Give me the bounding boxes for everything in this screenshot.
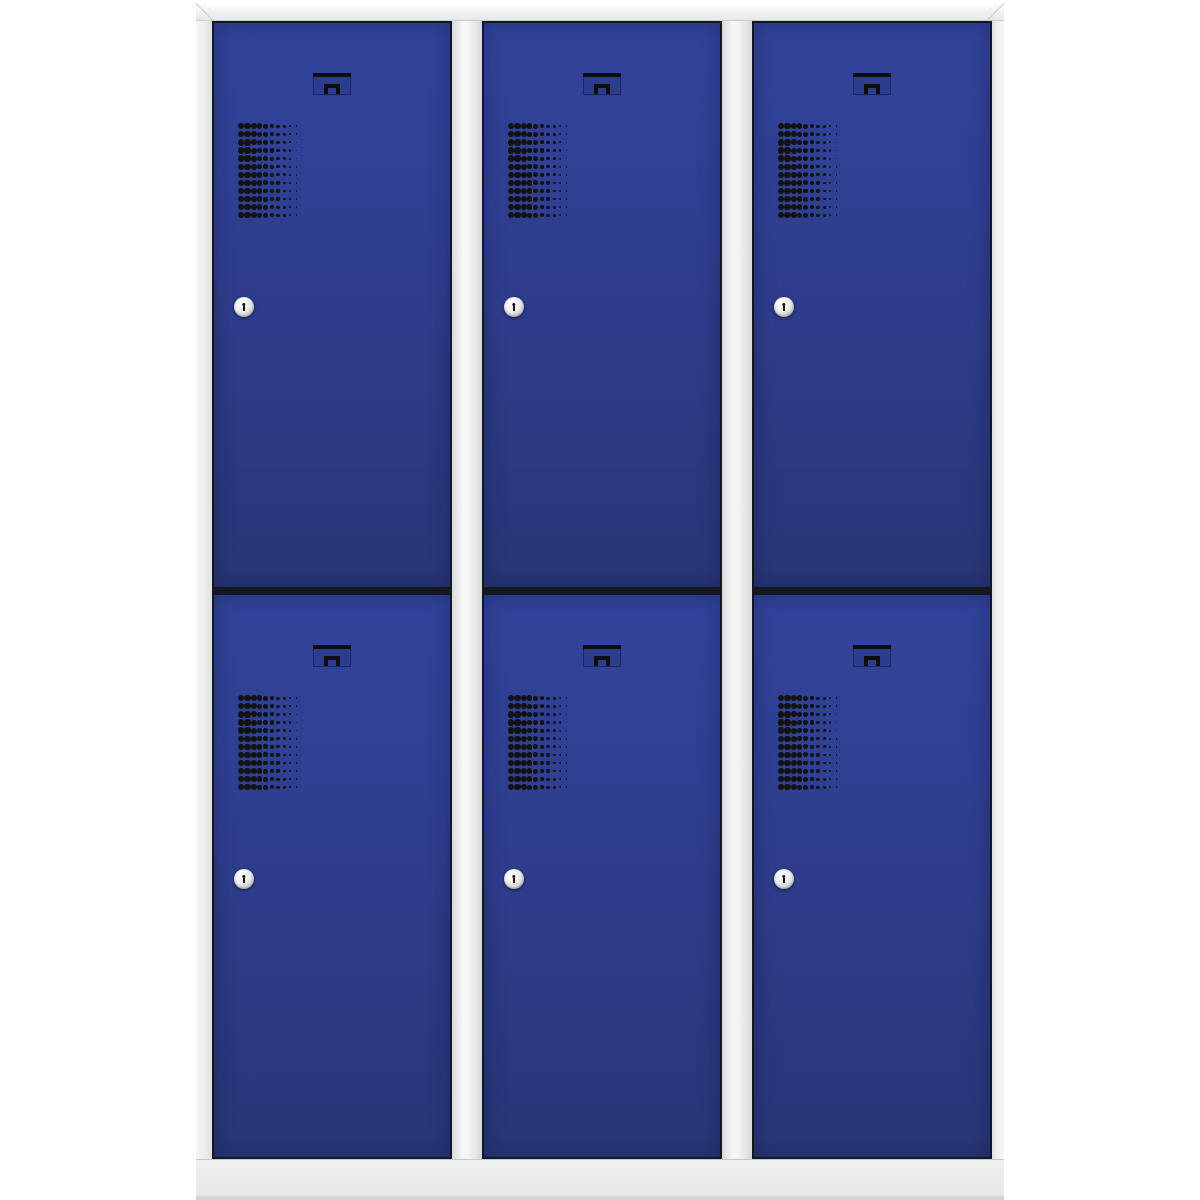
vent-dot — [521, 172, 527, 178]
vent-dot — [283, 149, 286, 152]
vent-dot — [553, 778, 556, 781]
vent-dot — [521, 139, 527, 145]
vent-dot — [784, 727, 790, 733]
vent-dot — [270, 189, 274, 193]
vent-dot — [263, 712, 268, 717]
vent-dot — [566, 150, 568, 152]
vent-dot — [559, 190, 561, 192]
vent-dot — [810, 753, 814, 757]
vent-dot — [566, 214, 568, 216]
vent-dot — [270, 745, 274, 749]
vent-dot — [829, 214, 831, 216]
vent-dot — [263, 189, 268, 194]
vent-dot — [823, 729, 826, 732]
vent-dot — [283, 713, 286, 716]
vent-dot — [514, 784, 520, 790]
vent-dot — [829, 190, 831, 192]
vent-dot — [251, 776, 257, 782]
vent-dot — [546, 197, 549, 200]
vent-dot — [283, 729, 286, 732]
vent-dot — [527, 156, 533, 162]
vent-dot — [797, 156, 803, 162]
vent-dot — [823, 754, 826, 757]
vent-dot — [553, 165, 556, 168]
vent-dot — [270, 205, 274, 209]
vent-dot — [566, 166, 568, 168]
vent-dot — [514, 164, 520, 170]
vent-dot — [829, 778, 831, 780]
vent-dot — [521, 720, 527, 726]
vent-dot — [784, 776, 790, 782]
vent-dot — [296, 150, 298, 152]
locker-column-2 — [482, 21, 722, 1159]
vent-dot — [527, 752, 533, 758]
door-latch-handle — [583, 73, 621, 95]
vent-dot — [810, 712, 814, 716]
vent-dot — [514, 196, 520, 202]
column-divider — [452, 21, 482, 1159]
vent-dot — [566, 697, 568, 699]
vent-dot — [784, 155, 790, 161]
vent-dot — [836, 738, 838, 740]
vent-dot — [816, 214, 819, 217]
vent-dot — [803, 156, 808, 161]
vent-dot — [521, 164, 527, 170]
vent-dot — [257, 720, 263, 726]
vent-dot — [533, 777, 538, 782]
vent-dot — [289, 133, 291, 135]
vent-dot — [276, 713, 279, 716]
vent-dot — [283, 206, 286, 209]
vent-dot — [540, 729, 544, 733]
vent-dot — [816, 721, 819, 724]
vent-dot — [251, 736, 257, 742]
vent-dot — [810, 745, 814, 749]
vent-dot — [791, 156, 797, 162]
vent-dot — [803, 744, 808, 749]
door-latch-handle — [853, 73, 891, 95]
vent-dot — [533, 164, 538, 169]
vent-dot — [527, 196, 533, 202]
vent-dot — [527, 123, 533, 129]
vent-dot — [296, 786, 298, 788]
vent-dot — [791, 703, 797, 709]
vent-dot — [296, 705, 298, 707]
vent-dot — [527, 736, 533, 742]
vent-dot — [784, 744, 790, 750]
vent-dot — [784, 180, 790, 186]
vent-dot — [566, 762, 568, 764]
vent-dot — [257, 744, 263, 750]
vent-dot — [836, 697, 838, 699]
vent-dot — [257, 204, 263, 210]
vent-dot — [289, 721, 291, 723]
latch-bracket — [864, 656, 880, 666]
vent-dot — [791, 744, 797, 750]
vent-dot — [244, 123, 250, 129]
vent-dot — [514, 736, 520, 742]
vent-dot — [514, 139, 520, 145]
vent-dot — [521, 760, 527, 766]
latch-recess — [583, 77, 621, 95]
vent-dot — [289, 705, 291, 707]
vent-dot — [566, 125, 568, 127]
vent-dot — [791, 123, 797, 129]
vent-dot — [797, 172, 803, 178]
ventilation-grille — [238, 123, 302, 221]
vent-dot — [540, 753, 544, 757]
vent-dot — [263, 785, 268, 790]
vent-dot — [521, 148, 527, 154]
vent-dot — [276, 133, 279, 136]
vent-dot — [836, 746, 838, 748]
vent-dot — [244, 760, 250, 766]
vent-dot — [270, 181, 274, 185]
vent-dot — [566, 778, 568, 780]
vent-dot — [797, 196, 803, 202]
vent-dot — [251, 148, 257, 154]
vent-dot — [803, 761, 808, 766]
vent-dot — [276, 214, 279, 217]
vent-dot — [283, 214, 286, 217]
vent-dot — [263, 197, 268, 202]
vent-dot — [296, 762, 298, 764]
vent-dot — [296, 214, 298, 216]
vent-dot — [276, 737, 279, 740]
vent-dot — [836, 125, 838, 127]
latch-recess — [583, 649, 621, 667]
vent-dot — [836, 770, 838, 772]
vent-dot — [559, 214, 561, 216]
vent-dot — [257, 188, 263, 194]
vent-dot — [803, 752, 808, 757]
vent-dot — [521, 204, 527, 210]
vent-dot — [559, 754, 561, 756]
vent-dot — [244, 736, 250, 742]
vent-dot — [276, 165, 279, 168]
vent-dot — [559, 174, 561, 176]
vent-dot — [244, 172, 250, 178]
locker-column-3 — [752, 21, 992, 1159]
vent-dot — [829, 738, 831, 740]
ventilation-grille — [508, 123, 572, 221]
vent-dot — [527, 188, 533, 194]
keyhole-slit — [243, 306, 245, 311]
vent-dot — [270, 124, 274, 128]
vent-dot — [797, 213, 803, 219]
vent-dot — [244, 188, 250, 194]
vent-dot — [559, 705, 561, 707]
vent-dot — [784, 703, 790, 709]
vent-dot — [546, 181, 549, 184]
vent-dot — [251, 728, 257, 734]
vent-dot — [244, 776, 250, 782]
vent-dot — [289, 786, 291, 788]
vent-dot — [257, 695, 263, 701]
vent-dot — [784, 123, 790, 129]
vent-dot — [296, 198, 298, 200]
vent-dot — [521, 156, 527, 162]
vent-dot — [559, 182, 561, 184]
vent-dot — [251, 123, 257, 129]
vent-dot — [829, 770, 831, 772]
vent-dot — [296, 158, 298, 160]
cylinder-lock — [234, 297, 254, 317]
vent-dot — [270, 213, 274, 217]
vent-dot — [836, 714, 838, 716]
vent-dot — [810, 148, 814, 152]
vent-dot — [791, 172, 797, 178]
vent-dot — [527, 760, 533, 766]
vent-dot — [251, 703, 257, 709]
vent-dot — [289, 730, 291, 732]
vent-dot — [296, 754, 298, 756]
vent-dot — [546, 778, 549, 781]
vent-dot — [276, 149, 279, 152]
latch-recess — [313, 649, 351, 667]
vent-dot — [566, 722, 568, 724]
vent-dot — [810, 132, 814, 136]
vent-dot — [836, 190, 838, 192]
vent-dot — [263, 213, 268, 218]
vent-dot — [257, 140, 263, 146]
vent-dot — [533, 769, 538, 774]
vent-dot — [244, 196, 250, 202]
vent-dot — [797, 188, 803, 194]
vent-dot — [289, 190, 291, 192]
vent-dot — [836, 133, 838, 135]
vent-dot — [270, 785, 274, 789]
vent-dot — [540, 140, 544, 144]
vent-dot — [791, 131, 797, 137]
vent-dot — [283, 173, 286, 176]
vent-dot — [829, 182, 831, 184]
vent-dot — [829, 746, 831, 748]
vent-dot — [276, 173, 279, 176]
vent-dot — [829, 721, 831, 723]
vent-dot — [296, 166, 298, 168]
vent-dot — [244, 711, 250, 717]
vent-dot — [566, 190, 568, 192]
vent-dot — [257, 728, 263, 734]
vent-dot — [553, 705, 556, 708]
vent-dot — [283, 165, 286, 168]
vent-dot — [251, 784, 257, 790]
vent-dot — [276, 769, 279, 772]
miter-seam-left — [195, 3, 214, 22]
vent-dot — [270, 132, 274, 136]
vent-dot — [816, 786, 819, 789]
vent-dot — [553, 721, 556, 724]
vent-dot — [263, 172, 268, 177]
vent-dot — [559, 730, 561, 732]
vent-dot — [540, 189, 544, 193]
vent-dot — [553, 198, 556, 201]
vent-dot — [823, 770, 826, 773]
vent-dot — [797, 744, 803, 750]
vent-dot — [283, 133, 286, 136]
vent-dot — [810, 737, 814, 741]
vent-dot — [546, 786, 549, 789]
vent-dot — [270, 720, 274, 724]
vent-dot — [797, 704, 803, 710]
vent-dot — [251, 180, 257, 186]
vent-dot — [263, 148, 268, 153]
vent-dot — [276, 206, 279, 209]
vent-dot — [797, 776, 803, 782]
vent-dot — [251, 711, 257, 717]
vent-dot — [263, 720, 268, 725]
vent-dot — [263, 736, 268, 741]
vent-dot — [527, 172, 533, 178]
vent-dot — [533, 736, 538, 741]
vent-dot — [270, 769, 274, 773]
vent-dot — [296, 190, 298, 192]
cabinet-side-rail-right — [992, 21, 1004, 1159]
locker-cabinet — [196, 4, 1004, 1200]
vent-dot — [810, 777, 814, 781]
latch-bracket — [324, 84, 340, 94]
vent-dot — [784, 736, 790, 742]
vent-dot — [296, 206, 298, 208]
vent-dot — [559, 149, 561, 151]
vent-dot — [276, 778, 279, 781]
vent-dot — [810, 197, 814, 201]
vent-dot — [803, 736, 808, 741]
vent-dot — [527, 140, 533, 146]
vent-dot — [289, 182, 291, 184]
vent-dot — [514, 752, 520, 758]
vent-dot — [829, 206, 831, 208]
vent-dot — [540, 712, 544, 716]
vent-dot — [836, 730, 838, 732]
vent-dot — [559, 786, 561, 788]
vent-dot — [546, 705, 549, 708]
vent-dot — [816, 206, 819, 209]
vent-dot — [527, 132, 533, 138]
vent-dot — [791, 148, 797, 154]
vent-dot — [244, 204, 250, 210]
vent-dot — [263, 124, 268, 129]
vent-dot — [533, 172, 538, 177]
vent-dot — [263, 164, 268, 169]
vent-dot — [540, 197, 544, 201]
latch-bracket — [864, 84, 880, 94]
vent-dot — [296, 697, 298, 699]
vent-dot — [296, 770, 298, 772]
vent-dot — [276, 181, 279, 184]
vent-dot — [559, 770, 561, 772]
vent-dot — [276, 745, 279, 748]
vent-dot — [797, 720, 803, 726]
vent-dot — [836, 150, 838, 152]
vent-dot — [244, 164, 250, 170]
vent-dot — [791, 139, 797, 145]
keyhole-slit — [513, 878, 515, 883]
vent-dot — [810, 189, 814, 193]
vent-dot — [784, 212, 790, 218]
vent-dot — [559, 778, 561, 780]
vent-dot — [546, 165, 549, 168]
vent-dot — [803, 704, 808, 709]
vent-dot — [829, 166, 831, 168]
vent-dot — [803, 140, 808, 145]
vent-dot — [514, 188, 520, 194]
vent-dot — [244, 727, 250, 733]
vent-dot — [289, 713, 291, 715]
vent-dot — [553, 157, 556, 160]
vent-dot — [270, 729, 274, 733]
vent-dot — [251, 172, 257, 178]
vent-dot — [803, 180, 808, 185]
vent-dot — [836, 722, 838, 724]
vent-dot — [816, 697, 819, 700]
vent-dot — [816, 737, 819, 740]
vent-dot — [521, 776, 527, 782]
vent-dot — [566, 174, 568, 176]
vent-dot — [244, 147, 250, 153]
latch-recess — [853, 649, 891, 667]
vent-dot — [533, 180, 538, 185]
vent-dot — [296, 142, 298, 144]
vent-dot — [289, 141, 291, 143]
vent-dot — [244, 784, 250, 790]
cabinet-plinth — [196, 1159, 1004, 1200]
vent-dot — [296, 738, 298, 740]
vent-dot — [553, 737, 556, 740]
vent-dot — [546, 141, 549, 144]
vent-dot — [533, 124, 538, 129]
vent-dot — [527, 776, 533, 782]
vent-dot — [257, 752, 263, 758]
vent-dot — [810, 761, 814, 765]
vent-dot — [251, 156, 257, 162]
vent-dot — [784, 760, 790, 766]
vent-dot — [289, 762, 291, 764]
cylinder-lock — [504, 869, 524, 889]
vent-dot — [514, 180, 520, 186]
vent-dot — [244, 744, 250, 750]
vent-dot — [566, 142, 568, 144]
vent-dot — [553, 206, 556, 209]
vent-dot — [289, 158, 291, 160]
vent-dot — [527, 768, 533, 774]
vent-dot — [263, 744, 268, 749]
vent-dot — [784, 139, 790, 145]
vent-dot — [533, 140, 538, 145]
door-latch-handle — [313, 645, 351, 667]
vent-dot — [540, 777, 544, 781]
vent-dot — [559, 762, 561, 764]
vent-dot — [533, 712, 538, 717]
vent-dot — [283, 778, 286, 781]
cylinder-lock — [234, 869, 254, 889]
vent-dot — [521, 188, 527, 194]
vent-dot — [810, 729, 814, 733]
vent-dot — [263, 205, 268, 210]
vent-dot — [527, 744, 533, 750]
vent-dot — [514, 147, 520, 153]
vent-dot — [514, 711, 520, 717]
vent-dot — [546, 133, 549, 136]
vent-dot — [829, 786, 831, 788]
vent-dot — [823, 206, 826, 209]
vent-dot — [546, 214, 549, 217]
vent-dot — [276, 721, 279, 724]
vent-dot — [540, 148, 544, 152]
vent-dot — [816, 197, 819, 200]
vent-dot — [823, 141, 826, 144]
